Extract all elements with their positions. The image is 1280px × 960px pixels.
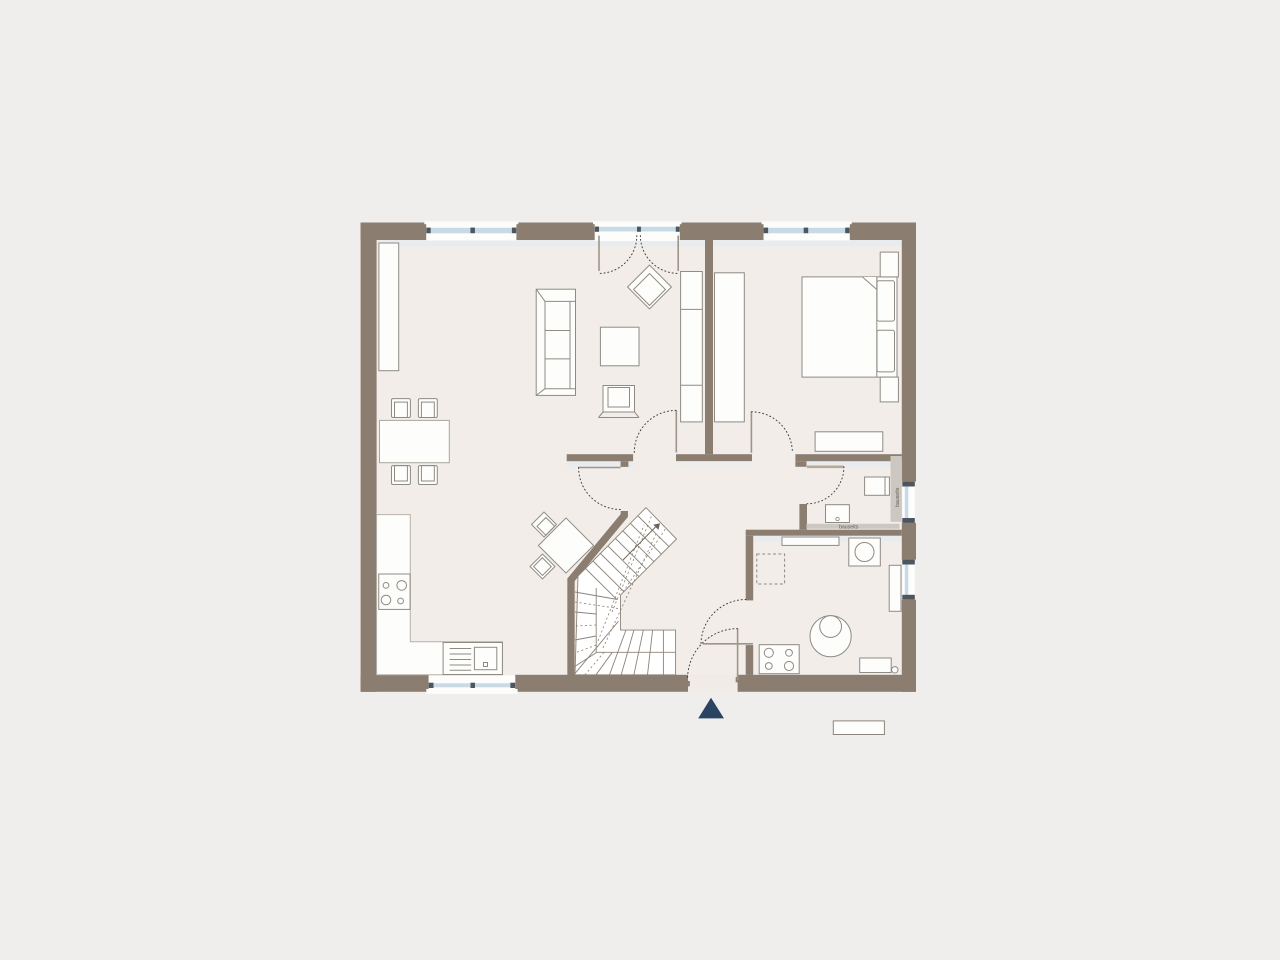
svg-text:bauseits: bauseits [895,487,901,507]
svg-text:bauseits: bauseits [839,525,859,531]
